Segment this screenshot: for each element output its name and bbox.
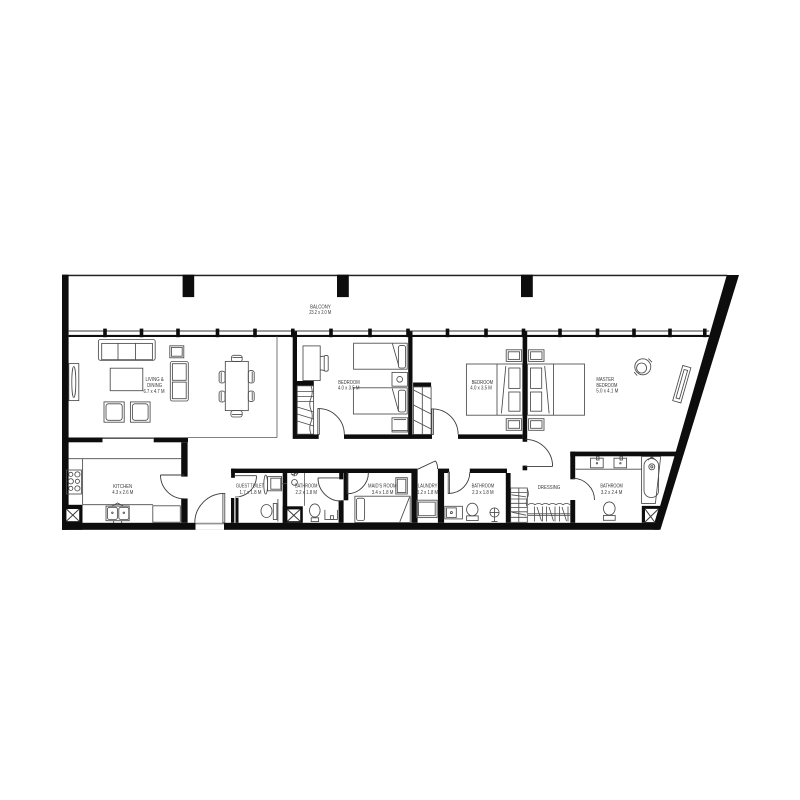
svg-text:2.3 x 1.8 M: 2.3 x 1.8 M [472, 490, 494, 496]
svg-text:6.7 x 4.7 M: 6.7 x 4.7 M [143, 389, 164, 395]
svg-text:DRESSING: DRESSING [538, 485, 561, 491]
svg-text:BATHROOM: BATHROOM [295, 484, 318, 490]
svg-text:GUEST TOILET: GUEST TOILET [236, 484, 265, 490]
svg-text:3.2 x 2.4 M: 3.2 x 2.4 M [601, 490, 623, 496]
svg-text:4.0 x 3.5 M: 4.0 x 3.5 M [470, 386, 492, 392]
svg-text:4.0 x 3.5 M: 4.0 x 3.5 M [338, 386, 360, 392]
svg-text:2.2 x 1.8 M: 2.2 x 1.8 M [295, 490, 317, 496]
svg-text:BATHROOM: BATHROOM [472, 484, 495, 490]
svg-text:4.3 x 2.6 M: 4.3 x 2.6 M [112, 490, 133, 496]
svg-text:5.0 x 4.1 M: 5.0 x 4.1 M [596, 389, 618, 395]
svg-text:BATHROOM: BATHROOM [600, 484, 623, 490]
svg-text:1.7 x 1.8 M: 1.7 x 1.8 M [240, 490, 262, 496]
svg-text:3.4 x 1.8 M: 3.4 x 1.8 M [372, 490, 394, 496]
svg-text:23.2 x 2.0 M: 23.2 x 2.0 M [309, 310, 331, 316]
svg-text:MAID'S ROOM: MAID'S ROOM [368, 484, 397, 490]
svg-text:LAUNDRY: LAUNDRY [418, 484, 438, 490]
svg-text:1.2 x 1.8 M: 1.2 x 1.8 M [417, 490, 438, 496]
